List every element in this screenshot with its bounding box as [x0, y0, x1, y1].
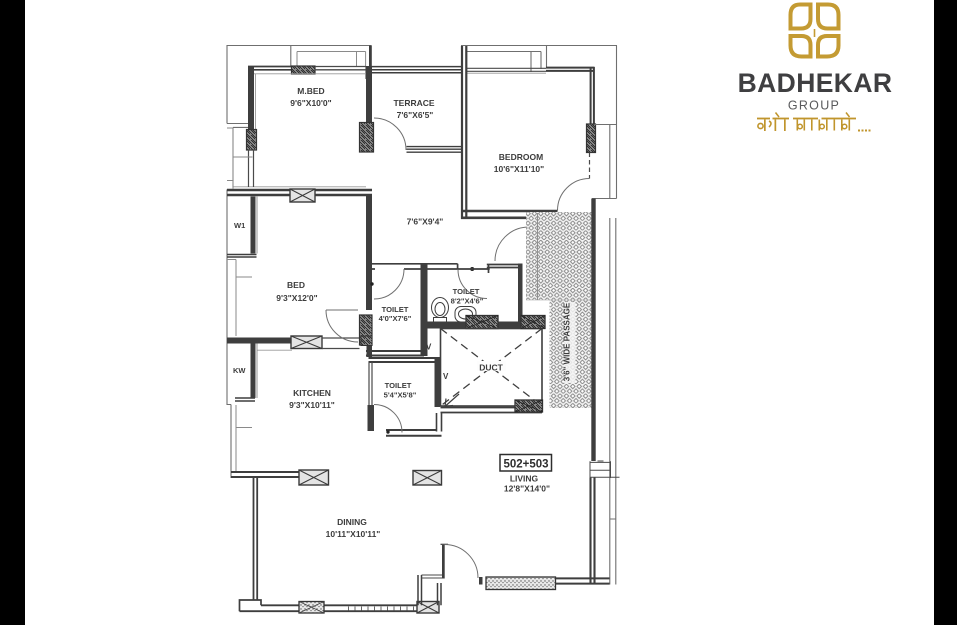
svg-text:V: V: [426, 343, 432, 352]
svg-text:4'0"X7'6": 4'0"X7'6": [379, 314, 412, 323]
svg-text:BED: BED: [287, 280, 305, 290]
svg-text:BEDROOM: BEDROOM: [499, 152, 543, 162]
svg-text:TERRACE: TERRACE: [393, 98, 434, 108]
svg-text:12'8"X14'0": 12'8"X14'0": [504, 484, 550, 494]
svg-text:5'4"X5'8": 5'4"X5'8": [384, 391, 417, 400]
svg-text:DINING: DINING: [337, 517, 367, 527]
svg-text:10'6"X11'10": 10'6"X11'10": [494, 164, 544, 174]
svg-text:9'6"X10'0": 9'6"X10'0": [290, 98, 331, 108]
svg-text:GROUP: GROUP: [788, 99, 840, 113]
svg-text:LIVING: LIVING: [510, 474, 539, 484]
svg-text:DUCT: DUCT: [479, 363, 503, 373]
svg-text:7'6"X9'4": 7'6"X9'4": [407, 217, 444, 227]
svg-text:7'6"X6'5": 7'6"X6'5": [397, 110, 434, 120]
svg-text:TOILET: TOILET: [382, 305, 409, 314]
svg-text:8'2"X4'6": 8'2"X4'6": [451, 297, 484, 306]
svg-text:KITCHEN: KITCHEN: [293, 388, 331, 398]
svg-text:KW: KW: [233, 366, 246, 375]
svg-text:502+503: 502+503: [503, 459, 548, 471]
svg-text:V: V: [443, 372, 449, 381]
svg-text:9'3"X12'0": 9'3"X12'0": [276, 293, 317, 303]
svg-text:TOILET: TOILET: [385, 381, 412, 390]
svg-text:BADHEKAR: BADHEKAR: [738, 68, 893, 98]
svg-text:9'3"X10'11": 9'3"X10'11": [289, 400, 335, 410]
svg-text:3'6" WIDE PASSAGE: 3'6" WIDE PASSAGE: [563, 302, 572, 381]
svg-text:W1: W1: [234, 221, 245, 230]
svg-text:TOILET: TOILET: [453, 287, 480, 296]
svg-text:10'11"X10'11": 10'11"X10'11": [326, 529, 381, 539]
svg-text:M.BED: M.BED: [297, 86, 324, 96]
